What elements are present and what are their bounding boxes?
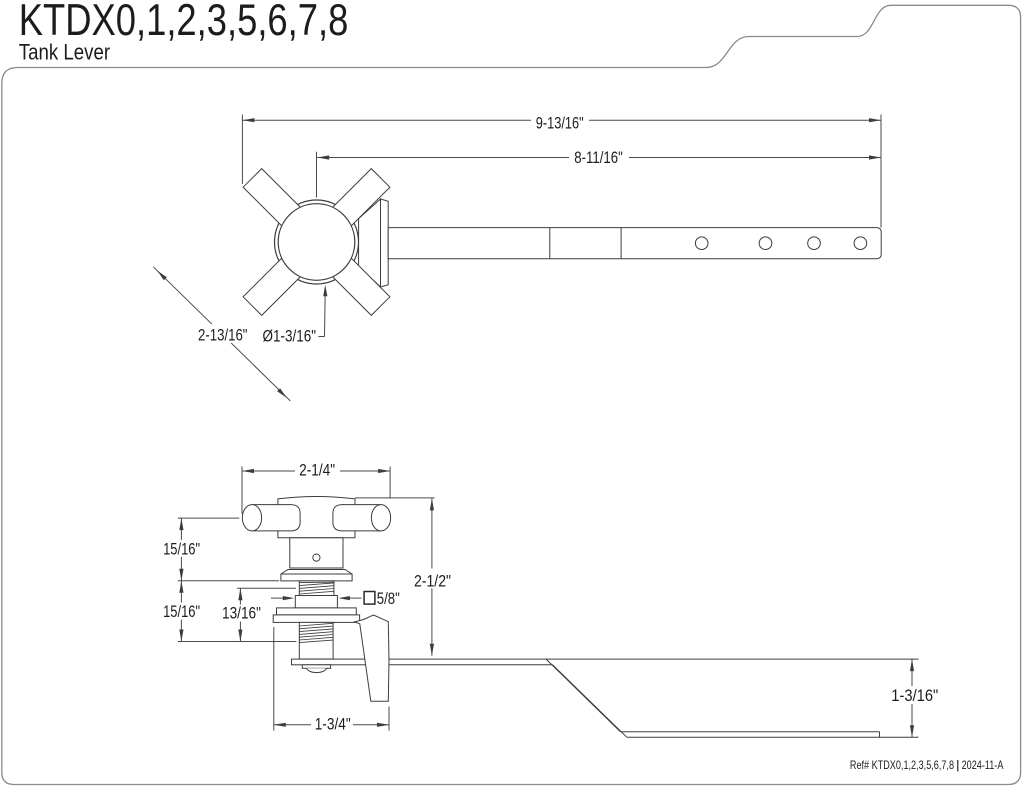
svg-text:Ref# KTDX0,1,2,3,5,6,7,8 | 202: Ref# KTDX0,1,2,3,5,6,7,8 | 2024-11-A bbox=[850, 758, 1004, 772]
svg-text:Tank Lever: Tank Lever bbox=[19, 39, 111, 64]
svg-text:2-1/2": 2-1/2" bbox=[414, 572, 451, 590]
svg-text:2-13/16": 2-13/16" bbox=[198, 327, 248, 345]
svg-text:9-13/16": 9-13/16" bbox=[536, 115, 584, 133]
svg-text:1-3/16": 1-3/16" bbox=[891, 687, 938, 705]
svg-text:15/16": 15/16" bbox=[163, 603, 200, 621]
svg-text:8-11/16": 8-11/16" bbox=[574, 149, 623, 167]
svg-text:5/8": 5/8" bbox=[377, 590, 400, 608]
svg-text:15/16": 15/16" bbox=[163, 540, 200, 558]
svg-text:2-1/4": 2-1/4" bbox=[299, 462, 335, 480]
svg-text:1-3/4": 1-3/4" bbox=[315, 716, 351, 734]
svg-text:13/16": 13/16" bbox=[222, 605, 261, 623]
svg-text:Ø1-3/16": Ø1-3/16" bbox=[263, 328, 317, 346]
